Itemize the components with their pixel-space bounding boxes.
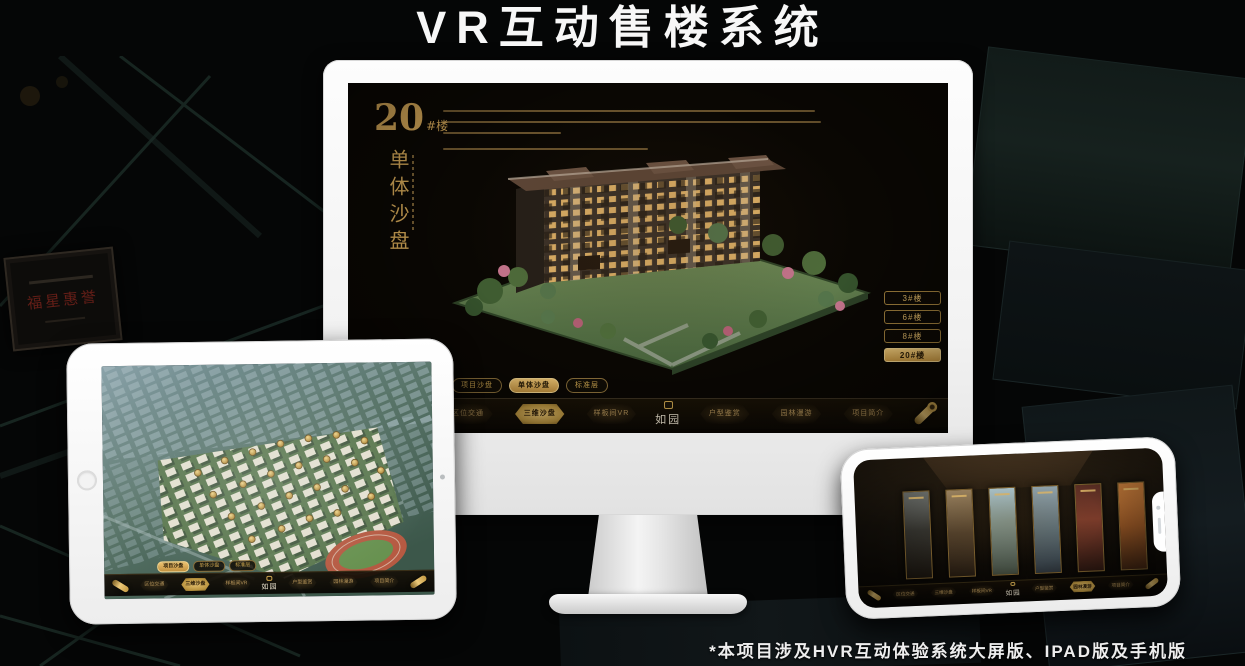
building-selector: 3#楼 6#楼 8#楼 20#楼 (884, 291, 941, 362)
phone-screen: 区位交通 三维沙盘 样板间VR 如园 户型鉴赏 园林漫游 项目简介 (853, 448, 1168, 609)
building-3d-render[interactable] (428, 141, 888, 381)
nav-item-location-traffic[interactable]: 区位交通 (891, 588, 920, 600)
gallery-panel-interior[interactable] (902, 490, 933, 579)
building-button-8[interactable]: 8#楼 (884, 329, 941, 343)
scroll-icon[interactable] (867, 589, 882, 601)
tab-standard-floor[interactable]: 标准层 (229, 560, 256, 571)
nav-logo[interactable]: 如园 (1005, 582, 1021, 598)
background-photo-tile (964, 46, 1245, 277)
description-line (443, 110, 815, 112)
gallery-panel-construction[interactable] (988, 487, 1019, 576)
nav-item-floorplan[interactable]: 户型鉴赏 (286, 576, 318, 589)
monitor-stand-neck (585, 515, 711, 601)
nav-item-garden-tour[interactable]: 园林漫游 (769, 404, 825, 424)
nav-item-showroom-vr[interactable]: 样板间VR (967, 585, 996, 597)
stage: 福星惠誉 VR互动售楼系统 20#楼 单体沙盘 (0, 0, 1245, 666)
nav-item-floorplan[interactable]: 户型鉴赏 (1030, 582, 1059, 594)
nav-item-garden-tour[interactable]: 园林漫游 (1068, 580, 1097, 592)
phone-notch (1152, 492, 1168, 552)
nav-logo[interactable]: 如园 (261, 575, 277, 591)
tab-standard-floor[interactable]: 标准层 (566, 378, 608, 393)
gallery-panel-building[interactable] (1031, 485, 1062, 574)
nav-item-3d-sandtable[interactable]: 三维沙盘 (179, 578, 211, 591)
nav-item-project-intro[interactable]: 项目简介 (840, 404, 896, 424)
description-line (443, 132, 561, 134)
background-photo-tile (992, 241, 1245, 410)
camera-icon (1156, 506, 1160, 510)
nav-item-location-traffic[interactable]: 区位交通 (138, 578, 170, 591)
speaker-icon (1158, 518, 1162, 534)
building-button-20[interactable]: 20#楼 (884, 348, 941, 362)
tablet-view-tabs: 项目沙盘 单体沙盘 标准层 (157, 560, 256, 572)
tab-project-sandtable[interactable]: 项目沙盘 (452, 378, 502, 393)
plaque-brand-text: 福星惠誉 (26, 285, 100, 313)
tab-project-sandtable[interactable]: 项目沙盘 (157, 561, 189, 572)
footnote: *本项目涉及HVR互动体验系统大屏版、IPAD版及手机版 (709, 637, 1187, 662)
background-brand-plaque: 福星惠誉 (3, 247, 122, 352)
scroll-icon[interactable] (913, 402, 937, 426)
seal-icon (664, 401, 673, 409)
scroll-icon[interactable] (409, 574, 427, 589)
logo-text: 如园 (655, 411, 681, 427)
scroll-icon[interactable] (111, 578, 130, 592)
panel-decor-line (412, 155, 414, 233)
interior-ceiling (923, 450, 1094, 491)
gallery-panel-shelf[interactable] (1117, 481, 1148, 570)
camera-icon (440, 474, 445, 479)
logo-text: 如园 (1005, 587, 1020, 598)
tab-single-sandtable[interactable]: 单体沙盘 (509, 378, 559, 393)
nav-item-garden-tour[interactable]: 园林漫游 (327, 576, 359, 589)
gallery-panel-signage[interactable] (1074, 483, 1105, 572)
tablet-screen: 项目沙盘 单体沙盘 标准层 区位交通 三维沙盘 样板间VR 如园 户型鉴赏 园林… (101, 362, 434, 600)
panel-subtitle-vertical: 单体沙盘 (384, 149, 413, 309)
scroll-icon[interactable] (1144, 577, 1159, 590)
tablet-device: 项目沙盘 单体沙盘 标准层 区位交通 三维沙盘 样板间VR 如园 户型鉴赏 园林… (66, 338, 457, 624)
nav-item-project-intro[interactable]: 项目简介 (368, 575, 400, 588)
plaque-decor-line (29, 274, 93, 284)
nav-item-showroom-vr[interactable]: 样板间VR (583, 404, 639, 424)
tab-single-sandtable[interactable]: 单体沙盘 (193, 561, 225, 572)
plaque-decor-line (45, 316, 85, 322)
monitor-stand-base (549, 594, 747, 614)
phone-navbar: 区位交通 三维沙盘 样板间VR 如园 户型鉴赏 园林漫游 项目简介 (858, 573, 1167, 604)
gallery-panel-lobby[interactable] (945, 489, 976, 578)
seal-icon (1010, 582, 1015, 586)
building-number-heading: 20#楼 (374, 97, 448, 139)
view-tabs: 项目沙盘 单体沙盘 标准层 (452, 378, 608, 393)
nav-item-floorplan[interactable]: 户型鉴赏 (697, 404, 753, 424)
home-button[interactable] (77, 470, 97, 490)
phone-device: 区位交通 三维沙盘 样板间VR 如园 户型鉴赏 园林漫游 项目简介 (840, 436, 1182, 620)
nav-item-project-intro[interactable]: 项目简介 (1106, 579, 1135, 591)
logo-text: 如园 (261, 581, 277, 591)
building-button-6[interactable]: 6#楼 (884, 310, 941, 324)
nav-item-3d-sandtable[interactable]: 三维沙盘 (512, 404, 568, 424)
page-title: VR互动售楼系统 (0, 0, 1245, 58)
building-number: 20 (374, 97, 424, 139)
nav-item-3d-sandtable[interactable]: 三维沙盘 (929, 586, 958, 598)
nav-item-showroom-vr[interactable]: 样板间VR (220, 577, 252, 590)
aerial-masterplan-render[interactable] (101, 362, 434, 600)
seal-icon (266, 575, 272, 580)
nav-logo[interactable]: 如园 (655, 401, 681, 427)
building-button-3[interactable]: 3#楼 (884, 291, 941, 305)
tablet-navbar: 区位交通 三维沙盘 样板间VR 如园 户型鉴赏 园林漫游 项目简介 (104, 570, 434, 597)
description-line (443, 121, 821, 123)
